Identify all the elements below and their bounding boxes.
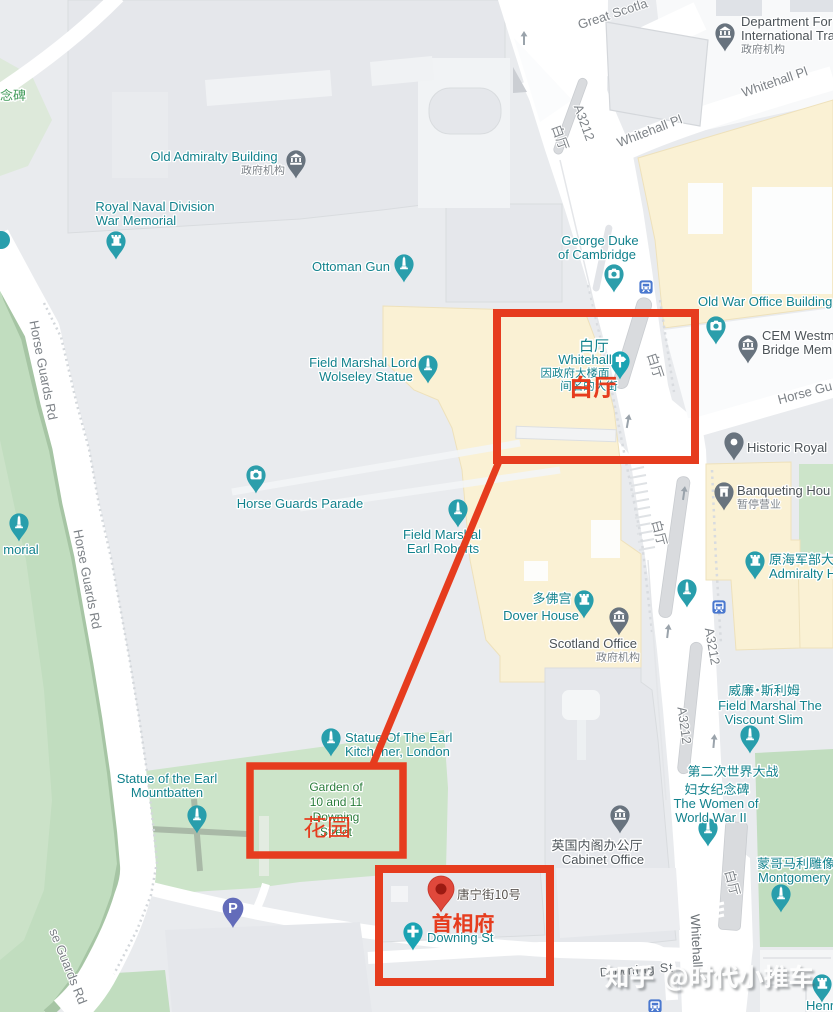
svg-text:CEM Westm: CEM Westm (762, 328, 833, 343)
svg-text:Statue Of The Earl: Statue Of The Earl (345, 730, 453, 745)
svg-text:Whitehall: Whitehall (688, 914, 706, 968)
svg-text:Montgomery Sta: Montgomery Sta (758, 870, 833, 885)
svg-text:Dover House: Dover House (503, 608, 579, 623)
svg-text:Bridge Mem: Bridge Mem (762, 342, 832, 357)
svg-text:10 and 11: 10 and 11 (310, 795, 363, 809)
svg-text:Wolseley Statue: Wolseley Statue (319, 369, 413, 384)
svg-text:Old War Office Building: Old War Office Building (698, 294, 832, 309)
svg-text:Royal Naval Division: Royal Naval Division (95, 199, 214, 214)
svg-text:Statue of the Earl: Statue of the Earl (117, 771, 218, 786)
svg-text:War Memorial: War Memorial (96, 213, 177, 228)
svg-text:of Cambridge: of Cambridge (558, 247, 636, 262)
svg-text:Earl Roberts: Earl Roberts (407, 541, 480, 556)
svg-text:Viscount Slim: Viscount Slim (725, 712, 804, 727)
svg-text:Whitehall: Whitehall (558, 352, 612, 367)
svg-text:Kitchener, London: Kitchener, London (345, 744, 450, 759)
svg-text:Scotland Office: Scotland Office (549, 636, 637, 651)
svg-text:Field Marshal The: Field Marshal The (718, 698, 822, 713)
svg-text:Admiralty Hou: Admiralty Hou (769, 566, 833, 581)
svg-text:Banqueting Hou: Banqueting Hou (737, 483, 830, 498)
svg-text:George Duke: George Duke (561, 233, 638, 248)
svg-text:World War II: World War II (675, 810, 747, 825)
svg-text:Field Marshal Lord: Field Marshal Lord (309, 355, 417, 370)
svg-text:International Tra: International Tra (741, 28, 833, 43)
svg-text:Historic Royal: Historic Royal (747, 440, 827, 455)
svg-text:Horse Guards Parade: Horse Guards Parade (237, 496, 363, 511)
svg-text:Mountbatten: Mountbatten (131, 785, 203, 800)
svg-text:Henr: Henr (806, 998, 833, 1012)
svg-text:morial: morial (3, 542, 39, 557)
svg-text:Old Admiralty Building: Old Admiralty Building (150, 149, 277, 164)
svg-text:The Women of: The Women of (673, 796, 758, 811)
svg-text:Ottoman Gun: Ottoman Gun (312, 259, 390, 274)
svg-text:Department For: Department For (741, 14, 833, 29)
svg-text:Garden of: Garden of (309, 780, 363, 794)
svg-text:Cabinet Office: Cabinet Office (562, 852, 644, 867)
